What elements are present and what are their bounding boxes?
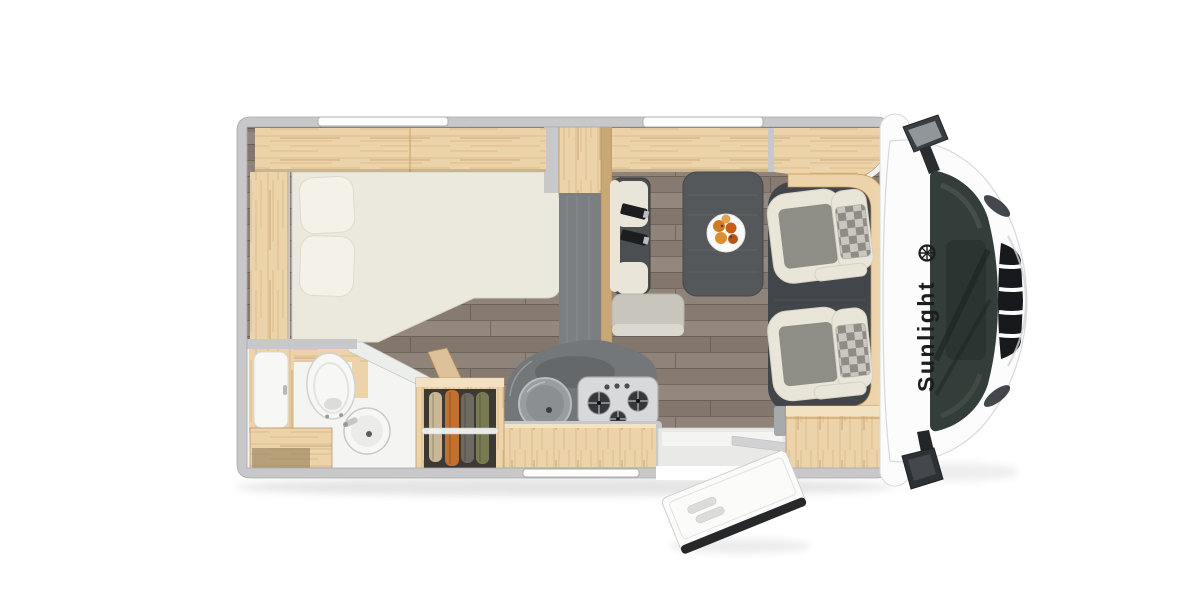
side-shelf [250,172,290,342]
fruit-plate [707,214,745,252]
locker-divider [768,128,774,172]
brand-wordmark: Sunlight [913,280,939,392]
burner [628,391,648,411]
floorplan-canvas: Sunlight [0,0,1200,600]
sideboard [786,406,884,470]
pillow [299,235,355,297]
gas-hob [578,377,658,427]
pillow [299,176,356,235]
dinette-table [683,172,763,296]
shower-cabinet [249,347,294,433]
roof-window [643,117,763,127]
cab-seating-area [765,174,884,420]
cab-seat-left [765,184,875,287]
bathroom-partition-wall [247,339,357,349]
wardrobe-rail [422,428,498,434]
headrest-checker [835,204,871,259]
cab-seat-right [766,303,875,404]
sunlight-sun-badge-icon [919,245,935,261]
partition-wall [544,127,559,193]
vanity-cabinet [250,428,332,470]
roof-window [318,117,448,126]
service-flap [523,469,639,477]
wardrobe [416,378,504,472]
cab-body: Sunlight [880,114,1027,486]
headrest-checker [835,323,870,378]
sideboard-foot [774,406,787,436]
burner [588,392,610,414]
kitchen-base-cabinet [498,421,662,471]
counter-column [559,193,601,358]
floorplan-stage: Sunlight [0,0,1200,600]
